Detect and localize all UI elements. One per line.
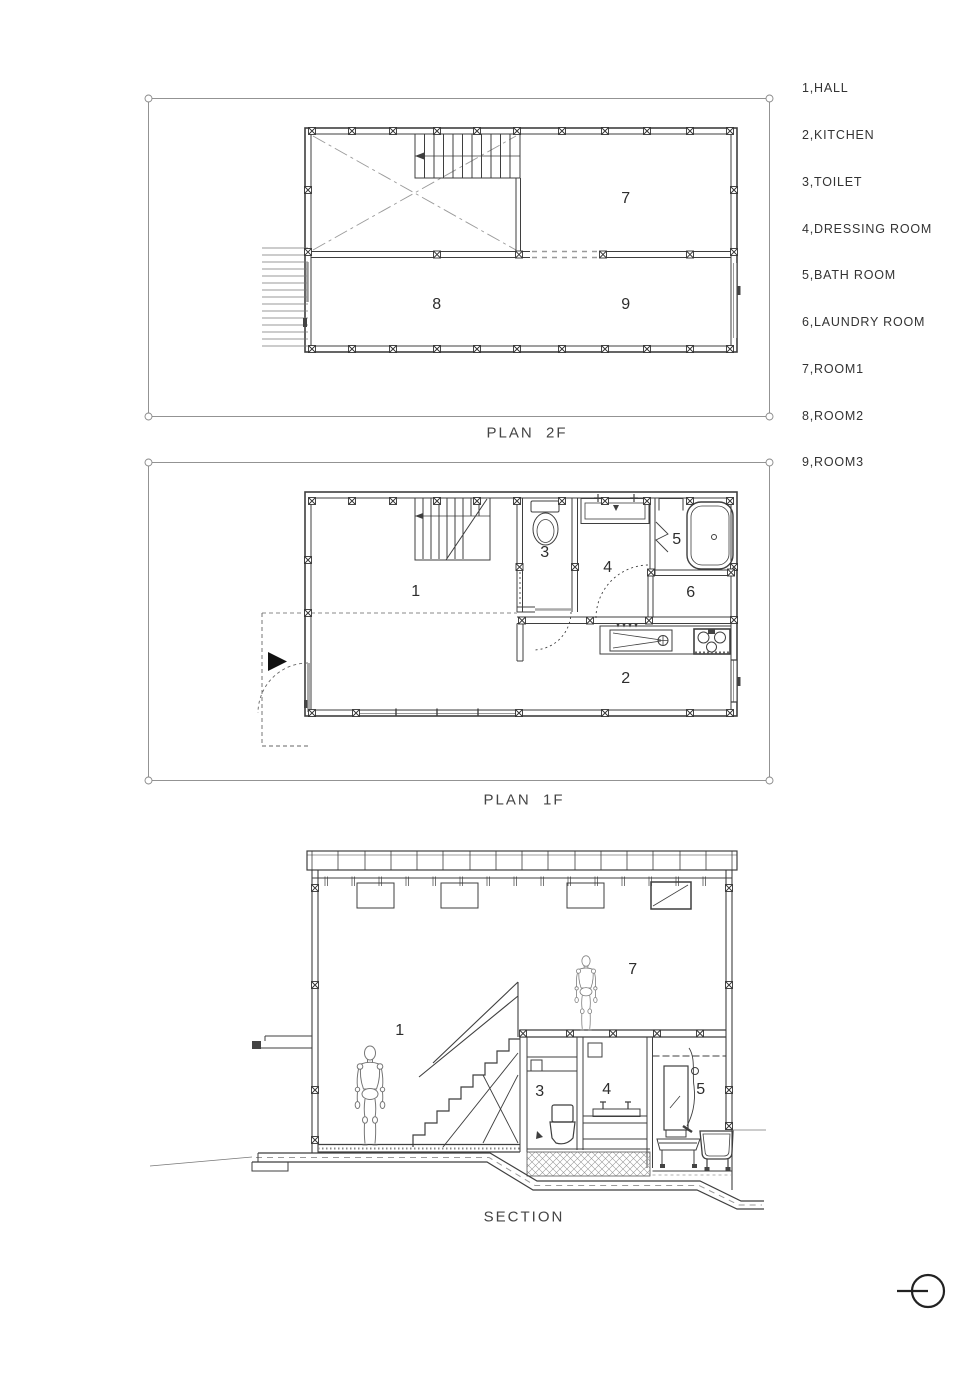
- entry-porch: [258, 613, 310, 746]
- entrance-arrow-icon: [268, 652, 287, 671]
- vanity-icon: [581, 494, 649, 524]
- room-label-dressing-section: 4: [602, 1081, 611, 1099]
- foundation: [150, 1130, 766, 1209]
- laundry-room-wall: [648, 576, 653, 618]
- toilet-icon: [531, 501, 559, 545]
- room-label-dressing-1f: 4: [603, 559, 612, 577]
- clerestory-windows: [357, 882, 691, 909]
- room-label-room3-2f: 9: [621, 296, 630, 314]
- legend-item: 6,LAUNDRY ROOM: [802, 315, 932, 331]
- plan-1f-title: PLAN 1F: [483, 792, 564, 809]
- plan-2f-drawing: [145, 95, 773, 420]
- kitchen-counter: [600, 624, 731, 654]
- room-label-hall-1f: 1: [411, 583, 420, 601]
- legend-item: 1,HALL: [802, 81, 932, 97]
- window-2f-right: [734, 263, 741, 338]
- toilet-room-walls: [517, 498, 578, 650]
- room-label-room1-section: 7: [628, 961, 637, 979]
- bathroom-block: [520, 1030, 733, 1176]
- room-label-bath-section: 5: [696, 1081, 705, 1099]
- balcony-2f: [262, 248, 308, 346]
- section-title: SECTION: [484, 1209, 565, 1226]
- north-arrow-icon: [897, 1275, 944, 1307]
- bathtub-section-icon: [700, 1131, 733, 1171]
- section-drawing: [150, 851, 766, 1209]
- entry-canopy: [252, 1036, 312, 1049]
- wall-posts-section: [312, 885, 733, 1144]
- room-label-laundry-1f: 6: [686, 584, 695, 602]
- stove-icon: [694, 629, 730, 654]
- stairs-1f: [415, 498, 490, 560]
- plan-2f-title: PLAN 2F: [486, 425, 567, 442]
- legend-item: 9,ROOM3: [802, 455, 932, 471]
- sink-icon: [610, 624, 672, 651]
- window-1f-east: [731, 660, 741, 702]
- legend-item: 4,DRESSING ROOM: [802, 222, 932, 238]
- room-label-toilet-section: 3: [535, 1083, 544, 1101]
- plan-1f-frame: [145, 459, 773, 784]
- legend-item: 2,KITCHEN: [802, 128, 932, 144]
- room-label-room2-2f: 8: [432, 296, 441, 314]
- legend-item: 5,BATH ROOM: [802, 268, 932, 284]
- legend-item: 7,ROOM1: [802, 362, 932, 378]
- vanity-section-icon: [583, 1102, 647, 1139]
- human-figure-1f: [355, 1046, 385, 1145]
- bath-section: [653, 1048, 734, 1175]
- room-label-toilet-1f: 3: [540, 544, 549, 562]
- shower-panel-icon: [664, 1066, 688, 1130]
- architectural-drawing-sheet: 1,HALL 2,KITCHEN 3,TOILET 4,DRESSING ROO…: [0, 0, 973, 1377]
- room-label-room1-2f: 7: [621, 190, 630, 208]
- toilet-section-icon: [536, 1105, 575, 1144]
- room-label-kitchen-1f: 2: [621, 670, 630, 688]
- room-label-bath-1f: 5: [672, 531, 681, 549]
- stairs-2f: [415, 134, 520, 178]
- roof-band: [307, 851, 737, 870]
- human-figure-2f: [575, 956, 597, 1030]
- room-label-hall-section: 1: [395, 1022, 404, 1040]
- room-legend: 1,HALL 2,KITCHEN 3,TOILET 4,DRESSING ROO…: [802, 50, 932, 487]
- stairs-section: [413, 982, 520, 1147]
- legend-item: 8,ROOM2: [802, 409, 932, 425]
- gravel-hatch: [527, 1152, 650, 1176]
- plan-1f-drawing: [145, 459, 773, 784]
- legend-item: 3,TOILET: [802, 175, 932, 191]
- bathtub-icon: [687, 502, 733, 569]
